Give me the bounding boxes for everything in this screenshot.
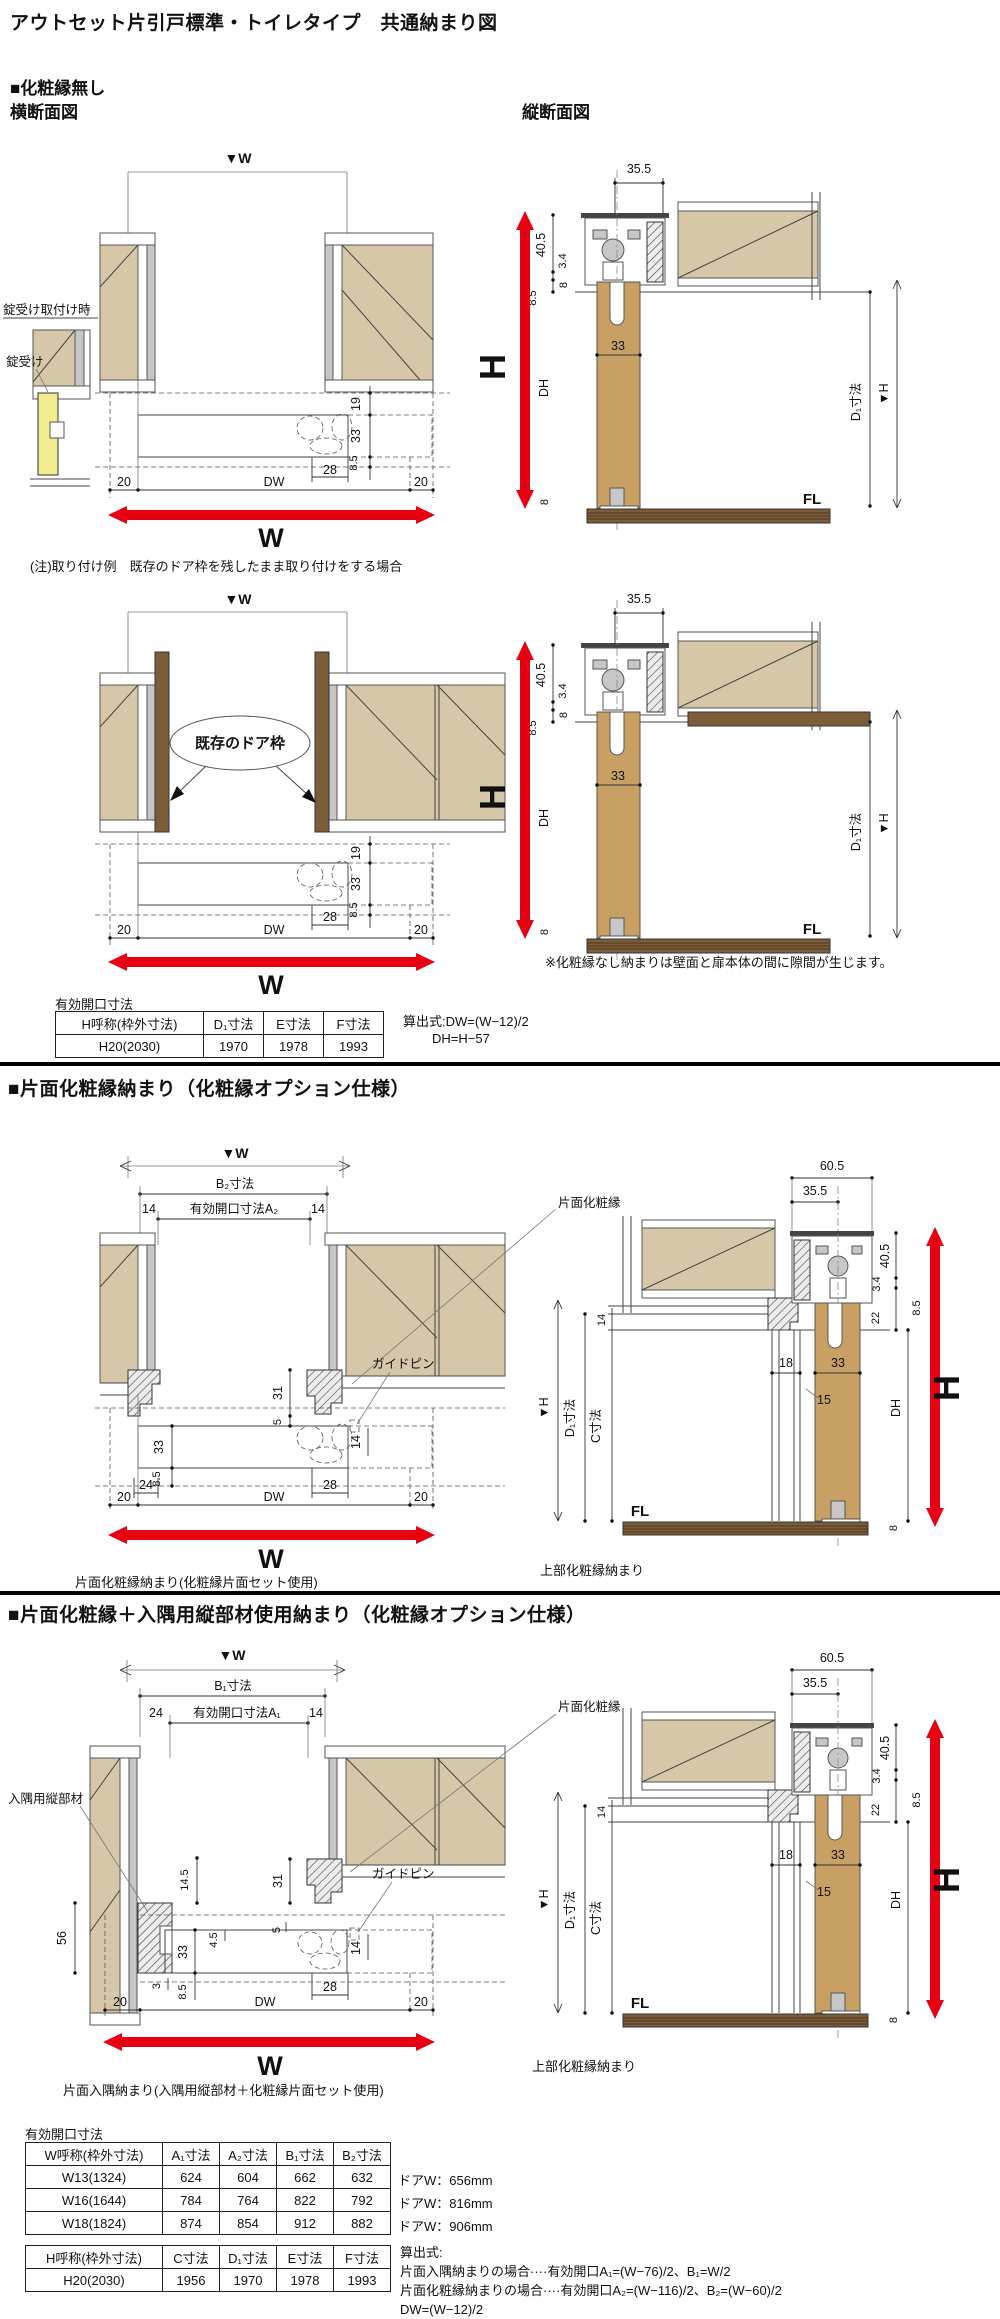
- cell: W18(1824): [26, 2212, 163, 2235]
- cell: 882: [334, 2212, 391, 2235]
- dim-33: 33: [176, 1945, 190, 1959]
- dim-8-5: 8.5: [348, 455, 360, 470]
- dim-dh: DH: [889, 1891, 903, 1909]
- dim-20-right: 20: [414, 475, 428, 489]
- dim-15: 15: [817, 1885, 831, 1899]
- dim-c: C寸法: [589, 1409, 603, 1443]
- dim-d1: D₁寸法: [849, 383, 863, 421]
- floor: [623, 2014, 868, 2027]
- h-arrow: H: [926, 1719, 967, 2019]
- dim-33: 33: [831, 1848, 845, 1862]
- dimensions: 19 33 8.5 28 20 DW 20: [108, 836, 434, 940]
- dim-22: 22: [870, 1804, 882, 1816]
- cell: H20(2030): [56, 1035, 204, 1058]
- dim-33: 33: [349, 877, 363, 891]
- col-header: D₁寸法: [204, 1012, 264, 1035]
- trim-profile-right: [307, 1859, 342, 1903]
- cell: 662: [277, 2166, 334, 2189]
- dim-3: 3: [151, 1983, 163, 1989]
- fl-label: FL: [803, 491, 821, 508]
- cross-section-install-example: ▼W 既存のドア枠: [95, 591, 505, 1000]
- cell: 1993: [334, 2269, 391, 2292]
- dim-28: 28: [323, 463, 337, 477]
- dim-3-4: 3.4: [557, 253, 569, 268]
- dim-24: 24: [139, 1478, 153, 1492]
- wall-section: [678, 192, 820, 300]
- cell: W13(1324): [26, 2166, 163, 2189]
- h-arrow-label: H: [472, 354, 513, 380]
- w-dims-table: W呼称(枠外寸法) A₁寸法 A₂寸法 B₁寸法 B₂寸法 W13(1324) …: [25, 2142, 391, 2235]
- dim-c: C寸法: [589, 1901, 603, 1935]
- door-w-note: ドアW：906mm: [398, 2216, 493, 2235]
- dim-open-a1: 有効開口寸法A₁: [193, 1705, 281, 1720]
- dim-h-marker: ▼H: [877, 383, 891, 404]
- dim-dw: DW: [264, 923, 285, 937]
- dim-22: 22: [870, 1312, 882, 1324]
- section2-heading: ■片面化粧縁納まり（化粧縁オプション仕様）: [8, 1074, 410, 1101]
- dim-8-5: 8.5: [348, 902, 360, 917]
- dim-8-top: 8: [558, 282, 570, 288]
- track-cover: [790, 1723, 874, 1728]
- section3-diagrams: ▼W B₁寸法 24 有効開口寸法A₁ 14 入隅用縦部材: [0, 1600, 1000, 2110]
- floor-guide: [610, 918, 624, 936]
- formula-line: 片面化粧縁納まりの場合····有効開口A₂=(W−116)/2、B₂=(W−60…: [400, 2281, 782, 2300]
- h-dims-table-sec1: H呼称(枠外寸法) D₁寸法 E寸法 F寸法 H20(2030) 1970 19…: [55, 1011, 384, 1058]
- cell: 1978: [277, 2269, 334, 2292]
- lock-receiver-label: 錠受け: [6, 354, 44, 369]
- existing-frame-callout: 既存のドア枠: [170, 716, 316, 803]
- dim-14: 14: [309, 1706, 323, 1720]
- dim-19: 19: [349, 846, 363, 860]
- dim-33: 33: [349, 429, 363, 443]
- one-side-trim-label: 片面化粧縁: [558, 1699, 621, 1714]
- cell: 1978: [264, 1035, 324, 1058]
- w-arrow-label: W: [258, 1544, 284, 1574]
- guide-pin-label: ガイドピン: [372, 1867, 435, 1881]
- cell: H20(2030): [26, 2269, 163, 2292]
- section1-heading: ■化粧縁無し: [10, 74, 105, 99]
- hanger-roller: [602, 669, 624, 691]
- dim-8-bottom: 8: [539, 929, 551, 935]
- wall-right: [325, 233, 433, 392]
- track-backing: [794, 1732, 810, 1792]
- wall-left: [100, 233, 155, 392]
- cell: 874: [163, 2212, 220, 2235]
- dim-dw: DW: [264, 1490, 285, 1504]
- h-arrow-label: H: [926, 1375, 967, 1401]
- table-header-row: H呼称(枠外寸法) D₁寸法 E寸法 F寸法: [56, 1012, 384, 1035]
- dim-4-5: 4.5: [208, 1932, 220, 1947]
- section2-cross-caption: 片面化粧縁納まり(化粧縁片面セット使用): [75, 1572, 318, 1591]
- floor-guide: [610, 488, 624, 506]
- trim-profile-left: [128, 1370, 160, 1416]
- dim-40-5: 40.5: [534, 663, 548, 687]
- w-arrow: W: [108, 953, 435, 1000]
- track-backing: [794, 1240, 810, 1300]
- col-header: H呼称(枠外寸法): [26, 2246, 163, 2269]
- dim-35-5: 35.5: [627, 592, 651, 606]
- existing-frame-left: [155, 652, 169, 832]
- vertical-section-title: 縦断面図: [522, 98, 590, 123]
- door-w-note: ドアW：656mm: [398, 2170, 493, 2189]
- corner-member-label: 入隅用縦部材: [8, 1791, 83, 1806]
- w-marker: ▼W: [218, 1647, 246, 1663]
- install-note: (注)取り付け例 既存のドア枠を残したまま取り付けをする場合: [30, 556, 402, 575]
- table-row: W13(1324) 624 604 662 632: [26, 2166, 391, 2189]
- hanger-slot: [828, 1795, 842, 1840]
- section2-diagrams: ▼W B₂寸法 14 有効開口寸法A₂ 14 片面化粧縁: [0, 1108, 1000, 1578]
- w-marker: ▼W: [224, 591, 252, 607]
- dim-14-pin: 14: [349, 1941, 363, 1955]
- vertical-section-top-trim: 60.5 35.5 40.5 3.4 8.5 22 14: [537, 1159, 967, 1546]
- dim-35-5: 35.5: [803, 1184, 827, 1198]
- dim-5: 5: [271, 1927, 283, 1933]
- section2-vert-caption: 上部化粧縁納まり: [540, 1560, 644, 1579]
- fl-label: FL: [803, 921, 821, 938]
- dim-40-5: 40.5: [534, 233, 548, 257]
- wall-right: [325, 1746, 505, 1877]
- floor-guide: [831, 1501, 845, 1519]
- h-arrow: H: [926, 1227, 967, 1527]
- existing-frame-label: 既存のドア枠: [195, 734, 285, 752]
- h-arrow-label: H: [926, 1867, 967, 1893]
- dim-8: 8: [888, 2017, 900, 2023]
- dim-dw: DW: [264, 475, 285, 489]
- dim-b2: B₂寸法: [216, 1177, 254, 1191]
- dim-8-5: 8.5: [177, 1984, 189, 1999]
- section-divider: [0, 1062, 1000, 1066]
- dim-60-5: 60.5: [820, 1651, 844, 1665]
- dim-20-right: 20: [414, 923, 428, 937]
- dim-35-5: 35.5: [803, 1676, 827, 1690]
- dim-24: 24: [149, 1706, 163, 1720]
- cell: 792: [334, 2189, 391, 2212]
- dim-dh: DH: [537, 809, 551, 827]
- dim-20-left: 20: [117, 923, 131, 937]
- h-dims-table: H呼称(枠外寸法) C寸法 D₁寸法 E寸法 F寸法 H20(2030) 195…: [25, 2245, 391, 2292]
- h-arrow-label: H: [472, 784, 513, 810]
- col-header: F寸法: [324, 1012, 384, 1035]
- dim-14-left: 14: [142, 1202, 156, 1216]
- dim-3-4: 3.4: [871, 1768, 883, 1783]
- h-arrow: H: [472, 211, 534, 509]
- dim-18: 18: [779, 1848, 793, 1862]
- drawing-sheet: { "title": "アウトセット片引戸標準・トイレタイプ 共通納まり図", …: [0, 0, 1000, 2318]
- dim-33: 33: [831, 1356, 845, 1370]
- col-header: A₂寸法: [220, 2143, 277, 2166]
- cell: 764: [220, 2189, 277, 2212]
- dim-20-left: 20: [113, 1995, 127, 2009]
- dim-19: 19: [349, 397, 363, 411]
- dim-40-5: 40.5: [878, 1736, 892, 1760]
- dim-14: 14: [596, 1314, 608, 1326]
- w-marker: ▼W: [221, 1145, 249, 1161]
- section3-cross-caption: 片面入隅納まり(入隅用縦部材＋化粧縁片面セット使用): [63, 2080, 384, 2099]
- dim-h-marker: ▼H: [537, 1397, 551, 1418]
- floor: [623, 1522, 868, 1535]
- dim-dh: DH: [537, 379, 551, 397]
- w-arrow: W: [108, 1526, 435, 1574]
- col-header: H呼称(枠外寸法): [56, 1012, 204, 1035]
- wall-section: [608, 1708, 775, 1806]
- w-marker: ▼W: [224, 150, 252, 166]
- page-title: アウトセット片引戸標準・トイレタイプ 共通納まり図: [10, 8, 498, 35]
- section3-vert-caption: 上部化粧縁納まり: [532, 2056, 636, 2075]
- cell: 1956: [163, 2269, 220, 2292]
- dim-d1: D₁寸法: [849, 813, 863, 851]
- cross-section-corner-member: ▼W B₁寸法 24 有効開口寸法A₁ 14 入隅用縦部材: [8, 1647, 621, 2081]
- dim-14-pin: 14: [349, 1435, 363, 1449]
- col-header: C寸法: [163, 2246, 220, 2269]
- hanger-slot: [828, 1303, 842, 1348]
- table-row: W18(1824) 874 854 912 882: [26, 2212, 391, 2235]
- formula-line: DW=(W−12)/2: [400, 2300, 782, 2319]
- dim-d1: D₁寸法: [563, 1891, 577, 1929]
- vertical-section-no-trim: 35.5 40.5 3.4 8.5 8: [472, 162, 901, 530]
- fl-label: FL: [631, 1503, 649, 1520]
- dim-33-door: 33: [611, 769, 625, 783]
- cross-section-one-side-trim: ▼W B₂寸法 14 有効開口寸法A₂ 14 片面化粧縁: [95, 1145, 621, 1574]
- dim-20-right: 20: [414, 1490, 428, 1504]
- dim-open-a2: 有効開口寸法A₂: [190, 1201, 278, 1216]
- dim-31: 31: [271, 1874, 285, 1888]
- calc-formulas: 算出式: 片面入隅納まりの場合····有効開口A₁=(W−76)/2、B₁=W/…: [400, 2243, 782, 2319]
- table-header-row: H呼称(枠外寸法) C寸法 D₁寸法 E寸法 F寸法: [26, 2246, 391, 2269]
- dim-8-top: 8: [558, 712, 570, 718]
- existing-frame-right: [315, 652, 329, 832]
- existing-frame-head: [688, 712, 870, 726]
- formula-dh: DH=H−57: [432, 1031, 490, 1046]
- cell: 604: [220, 2166, 277, 2189]
- formula-line: 算出式:: [400, 2243, 782, 2262]
- dim-15: 15: [817, 1393, 831, 1407]
- cell: 784: [163, 2189, 220, 2212]
- dim-14-right: 14: [311, 1202, 325, 1216]
- dim-28: 28: [323, 1478, 337, 1492]
- cell: 1993: [324, 1035, 384, 1058]
- w-arrow-label: W: [258, 523, 284, 553]
- table-row: H20(2030) 1970 1978 1993: [56, 1035, 384, 1058]
- door-w-note: ドアW：816mm: [398, 2193, 493, 2212]
- w-arrow-label: W: [257, 2051, 283, 2081]
- dim-20-right: 20: [414, 1995, 428, 2009]
- col-header: B₂寸法: [334, 2143, 391, 2166]
- gap-note: ※化粧縁なし納まりは壁面と扉本体の間に隙間が生じます。: [545, 952, 893, 971]
- dim-33-door: 33: [611, 339, 625, 353]
- cell: 624: [163, 2166, 220, 2189]
- floor-guide: [831, 1993, 845, 2011]
- dim-dw: DW: [255, 1995, 276, 2009]
- dim-8-5: 8.5: [911, 1792, 923, 1807]
- col-header: A₁寸法: [163, 2143, 220, 2166]
- fl-label: FL: [631, 1995, 649, 2012]
- dim-d1: D₁寸法: [563, 1399, 577, 1437]
- track-cover: [790, 1231, 874, 1236]
- dim-5: 5: [272, 1419, 284, 1425]
- dim-h-marker: ▼H: [537, 1889, 551, 1910]
- dim-20-left: 20: [117, 1490, 131, 1504]
- hanger-roller: [602, 239, 624, 261]
- left-dimensions: 40.5 3.4 8.5 8: [527, 643, 570, 735]
- cell: 912: [277, 2212, 334, 2235]
- guide-pin-label: ガイドピン: [372, 1357, 435, 1371]
- w-arrow-label: W: [258, 970, 284, 1000]
- table-row: H20(2030) 1956 1970 1978 1993: [26, 2269, 391, 2292]
- dim-14: 14: [596, 1806, 608, 1818]
- formula-line: 片面入隅納まりの場合····有効開口A₁=(W−76)/2、B₁=W/2: [400, 2262, 782, 2281]
- w-arrow: W: [108, 506, 435, 553]
- cross-section-title: 横断面図: [10, 98, 78, 123]
- track-backing: [647, 222, 663, 282]
- dim-28: 28: [323, 1980, 337, 1994]
- right-dimensions: 40.5 3.4 8.5 22: [870, 1723, 923, 1823]
- section-divider: [0, 1591, 1000, 1595]
- table-row: W16(1644) 784 764 822 792: [26, 2189, 391, 2212]
- wall-section: [608, 1216, 775, 1314]
- dim-18: 18: [779, 1356, 793, 1370]
- cell: W16(1644): [26, 2189, 163, 2212]
- col-header: E寸法: [277, 2246, 334, 2269]
- one-side-trim-label: 片面化粧縁: [558, 1195, 621, 1210]
- dim-60-5: 60.5: [820, 1159, 844, 1173]
- bottom-tables-caption: 有効開口寸法: [25, 2124, 103, 2143]
- cell: 822: [277, 2189, 334, 2212]
- left-dimensions: 40.5 3.4 8.5 8: [527, 213, 570, 305]
- dim-b1: B₁寸法: [214, 1679, 252, 1693]
- dimensions: 19 33 8.5 28 20 DW 20: [108, 386, 434, 492]
- dim-20-left: 20: [117, 475, 131, 489]
- dim-h-marker: ▼H: [877, 813, 891, 834]
- cell: 1970: [220, 2269, 277, 2292]
- hanger-slot: [610, 282, 624, 325]
- dim-35-5: 35.5: [627, 162, 651, 176]
- wall-left: [90, 1746, 140, 2025]
- dim-8: 8: [888, 1525, 900, 1531]
- dim-8-bottom: 8: [539, 499, 551, 505]
- cross-section-no-trim: ▼W: [3, 150, 450, 553]
- cell: 854: [220, 2212, 277, 2235]
- col-header: B₁寸法: [277, 2143, 334, 2166]
- vertical-section-install-example: 35.5 40.5 3.4 8.5 8: [472, 592, 901, 963]
- formula-dw: 算出式:DW=(W−12)/2: [403, 1011, 529, 1030]
- cell: 1970: [204, 1035, 264, 1058]
- w-arrow: W: [103, 2033, 435, 2081]
- dim-3-4: 3.4: [557, 683, 569, 698]
- col-header: D₁寸法: [220, 2246, 277, 2269]
- col-header: W呼称(枠外寸法): [26, 2143, 163, 2166]
- col-header: F寸法: [334, 2246, 391, 2269]
- pocket-frame: [105, 1915, 505, 2018]
- dim-56: 56: [55, 1931, 69, 1945]
- dim-8-5: 8.5: [911, 1300, 923, 1315]
- lock-receiver-detail: 錠受け取付け時 錠受け: [3, 302, 98, 486]
- table-header-row: W呼称(枠外寸法) A₁寸法 A₂寸法 B₁寸法 B₂寸法: [26, 2143, 391, 2166]
- dim-dh: DH: [889, 1399, 903, 1417]
- dim-3-4: 3.4: [871, 1276, 883, 1291]
- trim-profile-right: [307, 1370, 342, 1414]
- wall-left: [100, 673, 155, 832]
- dim-40-5: 40.5: [878, 1244, 892, 1268]
- dim-33: 33: [152, 1440, 166, 1454]
- dim-28: 28: [323, 910, 337, 924]
- right-dimensions: 40.5 3.4 8.5 22: [870, 1231, 923, 1331]
- track-cover: [581, 213, 669, 218]
- lock-receiver-title: 錠受け取付け時: [3, 302, 91, 317]
- dim-14-5: 14.5: [179, 1869, 191, 1890]
- col-header: E寸法: [264, 1012, 324, 1035]
- dim-31: 31: [271, 1386, 285, 1400]
- cell: 632: [334, 2166, 391, 2189]
